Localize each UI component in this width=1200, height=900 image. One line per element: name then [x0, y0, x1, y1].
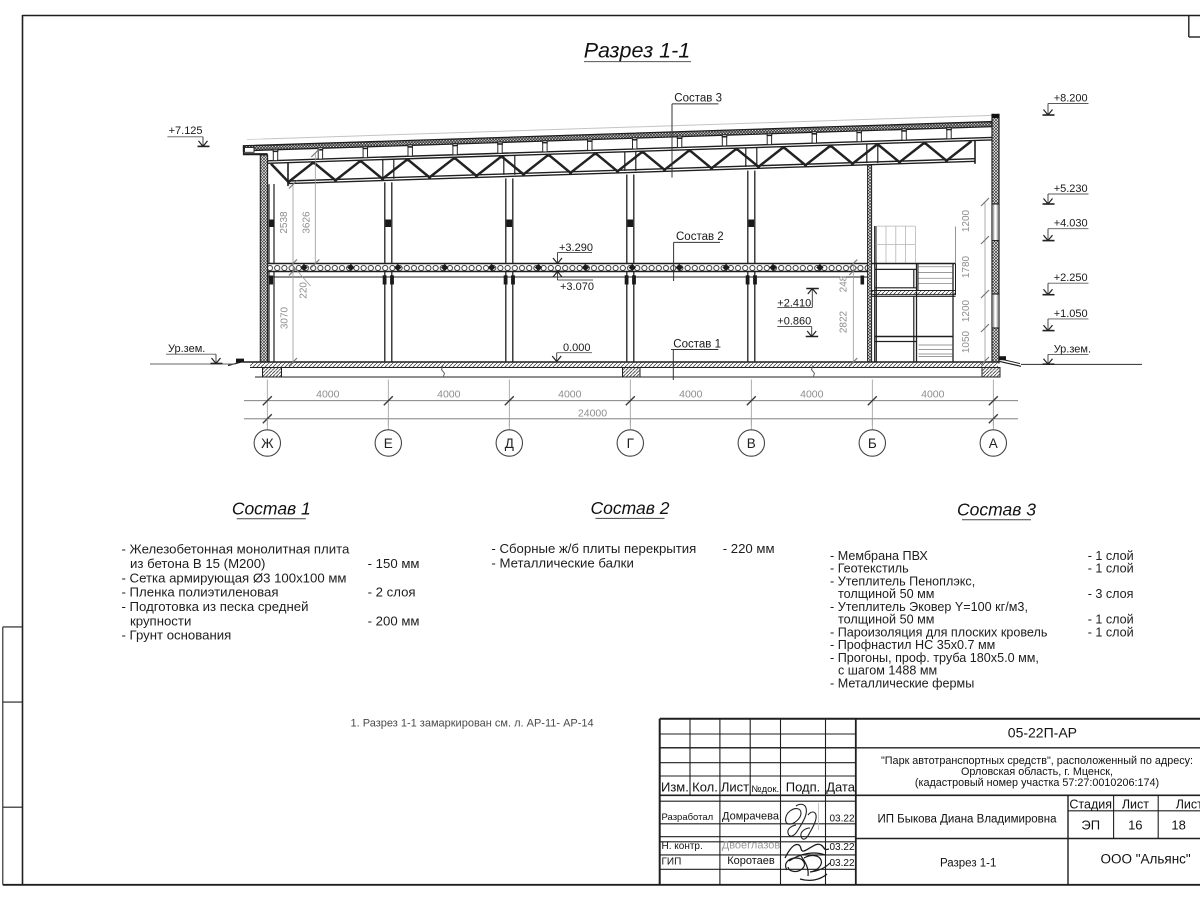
- svg-text:Состав 1: Состав 1: [232, 499, 311, 519]
- svg-text:Разработал: Разработал: [662, 812, 714, 823]
- svg-text:248: 248: [839, 275, 850, 292]
- svg-text:Листов: Листов: [1176, 797, 1200, 811]
- svg-text:03.22: 03.22: [829, 858, 854, 869]
- svg-text:- 200 мм: - 200 мм: [368, 613, 420, 628]
- svg-text:2538: 2538: [279, 211, 290, 234]
- svg-text:Лист: Лист: [721, 779, 749, 794]
- svg-text:03.22: 03.22: [829, 842, 854, 853]
- svg-text:А: А: [989, 436, 998, 451]
- svg-text:Состав 2: Состав 2: [591, 498, 670, 518]
- svg-text:- Сборные ж/б плиты перекрытия: - Сборные ж/б плиты перекрытия: [491, 541, 696, 556]
- svg-text:- Подготовка из песка средней: - Подготовка из песка средней: [122, 599, 309, 614]
- svg-text:4000: 4000: [679, 389, 703, 401]
- svg-text:1780: 1780: [961, 255, 972, 278]
- svg-text:Домрачева: Домрачева: [722, 810, 780, 822]
- svg-text:+5.230: +5.230: [1054, 183, 1088, 195]
- svg-text:- 1 слой: - 1 слой: [1088, 625, 1134, 639]
- svg-text:- Металлические фермы: - Металлические фермы: [830, 676, 974, 690]
- svg-text:3626: 3626: [302, 211, 313, 234]
- svg-text:из бетона В 15 (М200): из бетона В 15 (М200): [130, 556, 265, 571]
- svg-text:(кадастровый номер участка 57:: (кадастровый номер участка 57:27:0010206…: [915, 777, 1159, 789]
- svg-text:Ур.зем.: Ур.зем.: [168, 343, 205, 355]
- svg-text:В: В: [747, 436, 756, 451]
- svg-text:Подп.: Подп.: [786, 779, 821, 794]
- svg-text:+3.070: +3.070: [560, 281, 594, 293]
- svg-text:Дата: Дата: [826, 779, 856, 794]
- svg-text:Двоеглазов: Двоеглазов: [722, 840, 781, 852]
- svg-text:Ур.зем.: Ур.зем.: [1054, 343, 1091, 355]
- svg-text:- Железобетонная монолитная п: - Железобетонная монолитная плита: [122, 542, 351, 557]
- svg-text:- Пленка полиэтиленовая: - Пленка полиэтиленовая: [122, 585, 279, 600]
- svg-text:Стадия: Стадия: [1069, 797, 1112, 811]
- svg-text:16: 16: [1128, 818, 1142, 833]
- svg-text:Состав 2: Состав 2: [676, 231, 724, 243]
- svg-text:+0.860: +0.860: [777, 316, 811, 328]
- svg-text:Лист: Лист: [1122, 797, 1149, 811]
- svg-text:- Грунт основания: - Грунт основания: [122, 628, 232, 643]
- svg-text:Состав 3: Состав 3: [957, 500, 1036, 520]
- svg-text:4000: 4000: [316, 389, 340, 401]
- svg-text:Изм.: Изм.: [661, 779, 689, 794]
- svg-text:ГИП: ГИП: [662, 857, 682, 868]
- svg-text:Коротаев: Коротаев: [727, 855, 775, 867]
- svg-text:1050: 1050: [961, 330, 972, 353]
- svg-text:220: 220: [299, 282, 310, 299]
- svg-text:- 150 мм: - 150 мм: [368, 556, 420, 571]
- svg-text:Состав 1: Состав 1: [673, 338, 721, 350]
- svg-text:4000: 4000: [558, 389, 582, 401]
- svg-text:18: 18: [1171, 818, 1185, 833]
- svg-text:- 1 слой: - 1 слой: [1088, 562, 1134, 576]
- svg-text:Е: Е: [384, 436, 393, 451]
- svg-text:Разрез 1-1: Разрез 1-1: [584, 39, 691, 63]
- svg-text:1200: 1200: [961, 209, 972, 232]
- svg-text:2822: 2822: [839, 310, 850, 333]
- svg-text:Н. контр.: Н. контр.: [662, 841, 703, 852]
- svg-text:+7.125: +7.125: [169, 125, 203, 137]
- svg-text:+8.200: +8.200: [1054, 93, 1088, 105]
- svg-text:ИП Быкова Диана Владимировна: ИП Быкова Диана Владимировна: [877, 814, 1057, 826]
- svg-text:24000: 24000: [578, 408, 607, 420]
- svg-text:4000: 4000: [800, 389, 824, 401]
- svg-text:1200: 1200: [961, 299, 972, 322]
- svg-text:1. Разрез 1-1 замаркирован см.: 1. Разрез 1-1 замаркирован см. л. АР-11-…: [351, 717, 594, 729]
- svg-text:4000: 4000: [921, 389, 945, 401]
- svg-text:03.22: 03.22: [829, 814, 854, 825]
- svg-text:- 220 мм: - 220 мм: [723, 541, 775, 556]
- svg-text:+4.030: +4.030: [1054, 218, 1088, 230]
- svg-text:4000: 4000: [437, 389, 461, 401]
- svg-text:+1.050: +1.050: [1054, 308, 1088, 320]
- svg-text:Г: Г: [627, 436, 635, 451]
- svg-text:Кол.: Кол.: [692, 779, 718, 794]
- svg-text:№док.: №док.: [751, 784, 779, 795]
- svg-text:- 2 слоя: - 2 слоя: [368, 585, 416, 600]
- svg-text:- 3 слоя: - 3 слоя: [1088, 587, 1134, 601]
- svg-text:Ж: Ж: [261, 436, 274, 451]
- svg-text:05-22П-АР: 05-22П-АР: [1008, 725, 1077, 741]
- svg-text:ООО "Альянс": ООО "Альянс": [1100, 851, 1190, 866]
- svg-text:крупности: крупности: [130, 613, 191, 628]
- svg-text:Б: Б: [868, 436, 877, 451]
- svg-text:Д: Д: [505, 436, 514, 451]
- svg-text:Состав 3: Состав 3: [674, 93, 722, 105]
- svg-text:3070: 3070: [280, 306, 291, 329]
- svg-text:- Металлические балки: - Металлические балки: [491, 556, 633, 571]
- svg-text:+2.250: +2.250: [1054, 272, 1088, 284]
- svg-text:ЭП: ЭП: [1081, 818, 1100, 833]
- svg-text:- Сетка армирующая Ø3 100х100: - Сетка армирующая Ø3 100х100 мм: [122, 570, 347, 585]
- svg-text:Разрез 1-1: Разрез 1-1: [940, 858, 996, 870]
